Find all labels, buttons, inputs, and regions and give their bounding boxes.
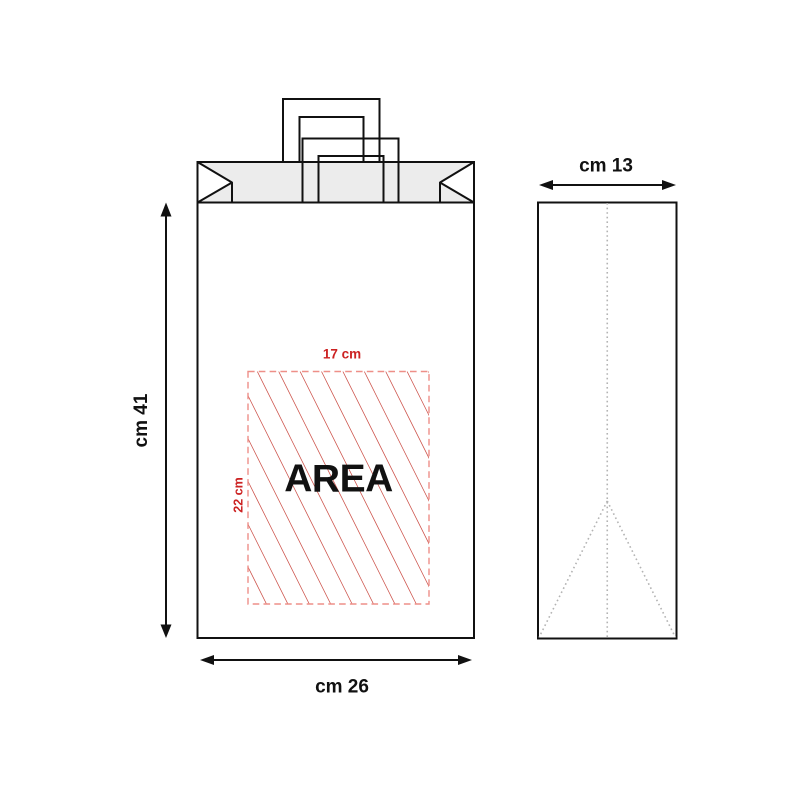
svg-text:AREA: AREA <box>284 458 393 501</box>
svg-text:cm 26: cm 26 <box>315 677 369 698</box>
svg-text:cm 13: cm 13 <box>579 156 633 177</box>
svg-text:22 cm: 22 cm <box>232 477 246 512</box>
svg-text:cm 41: cm 41 <box>131 393 152 447</box>
svg-text:17 cm: 17 cm <box>323 347 361 362</box>
